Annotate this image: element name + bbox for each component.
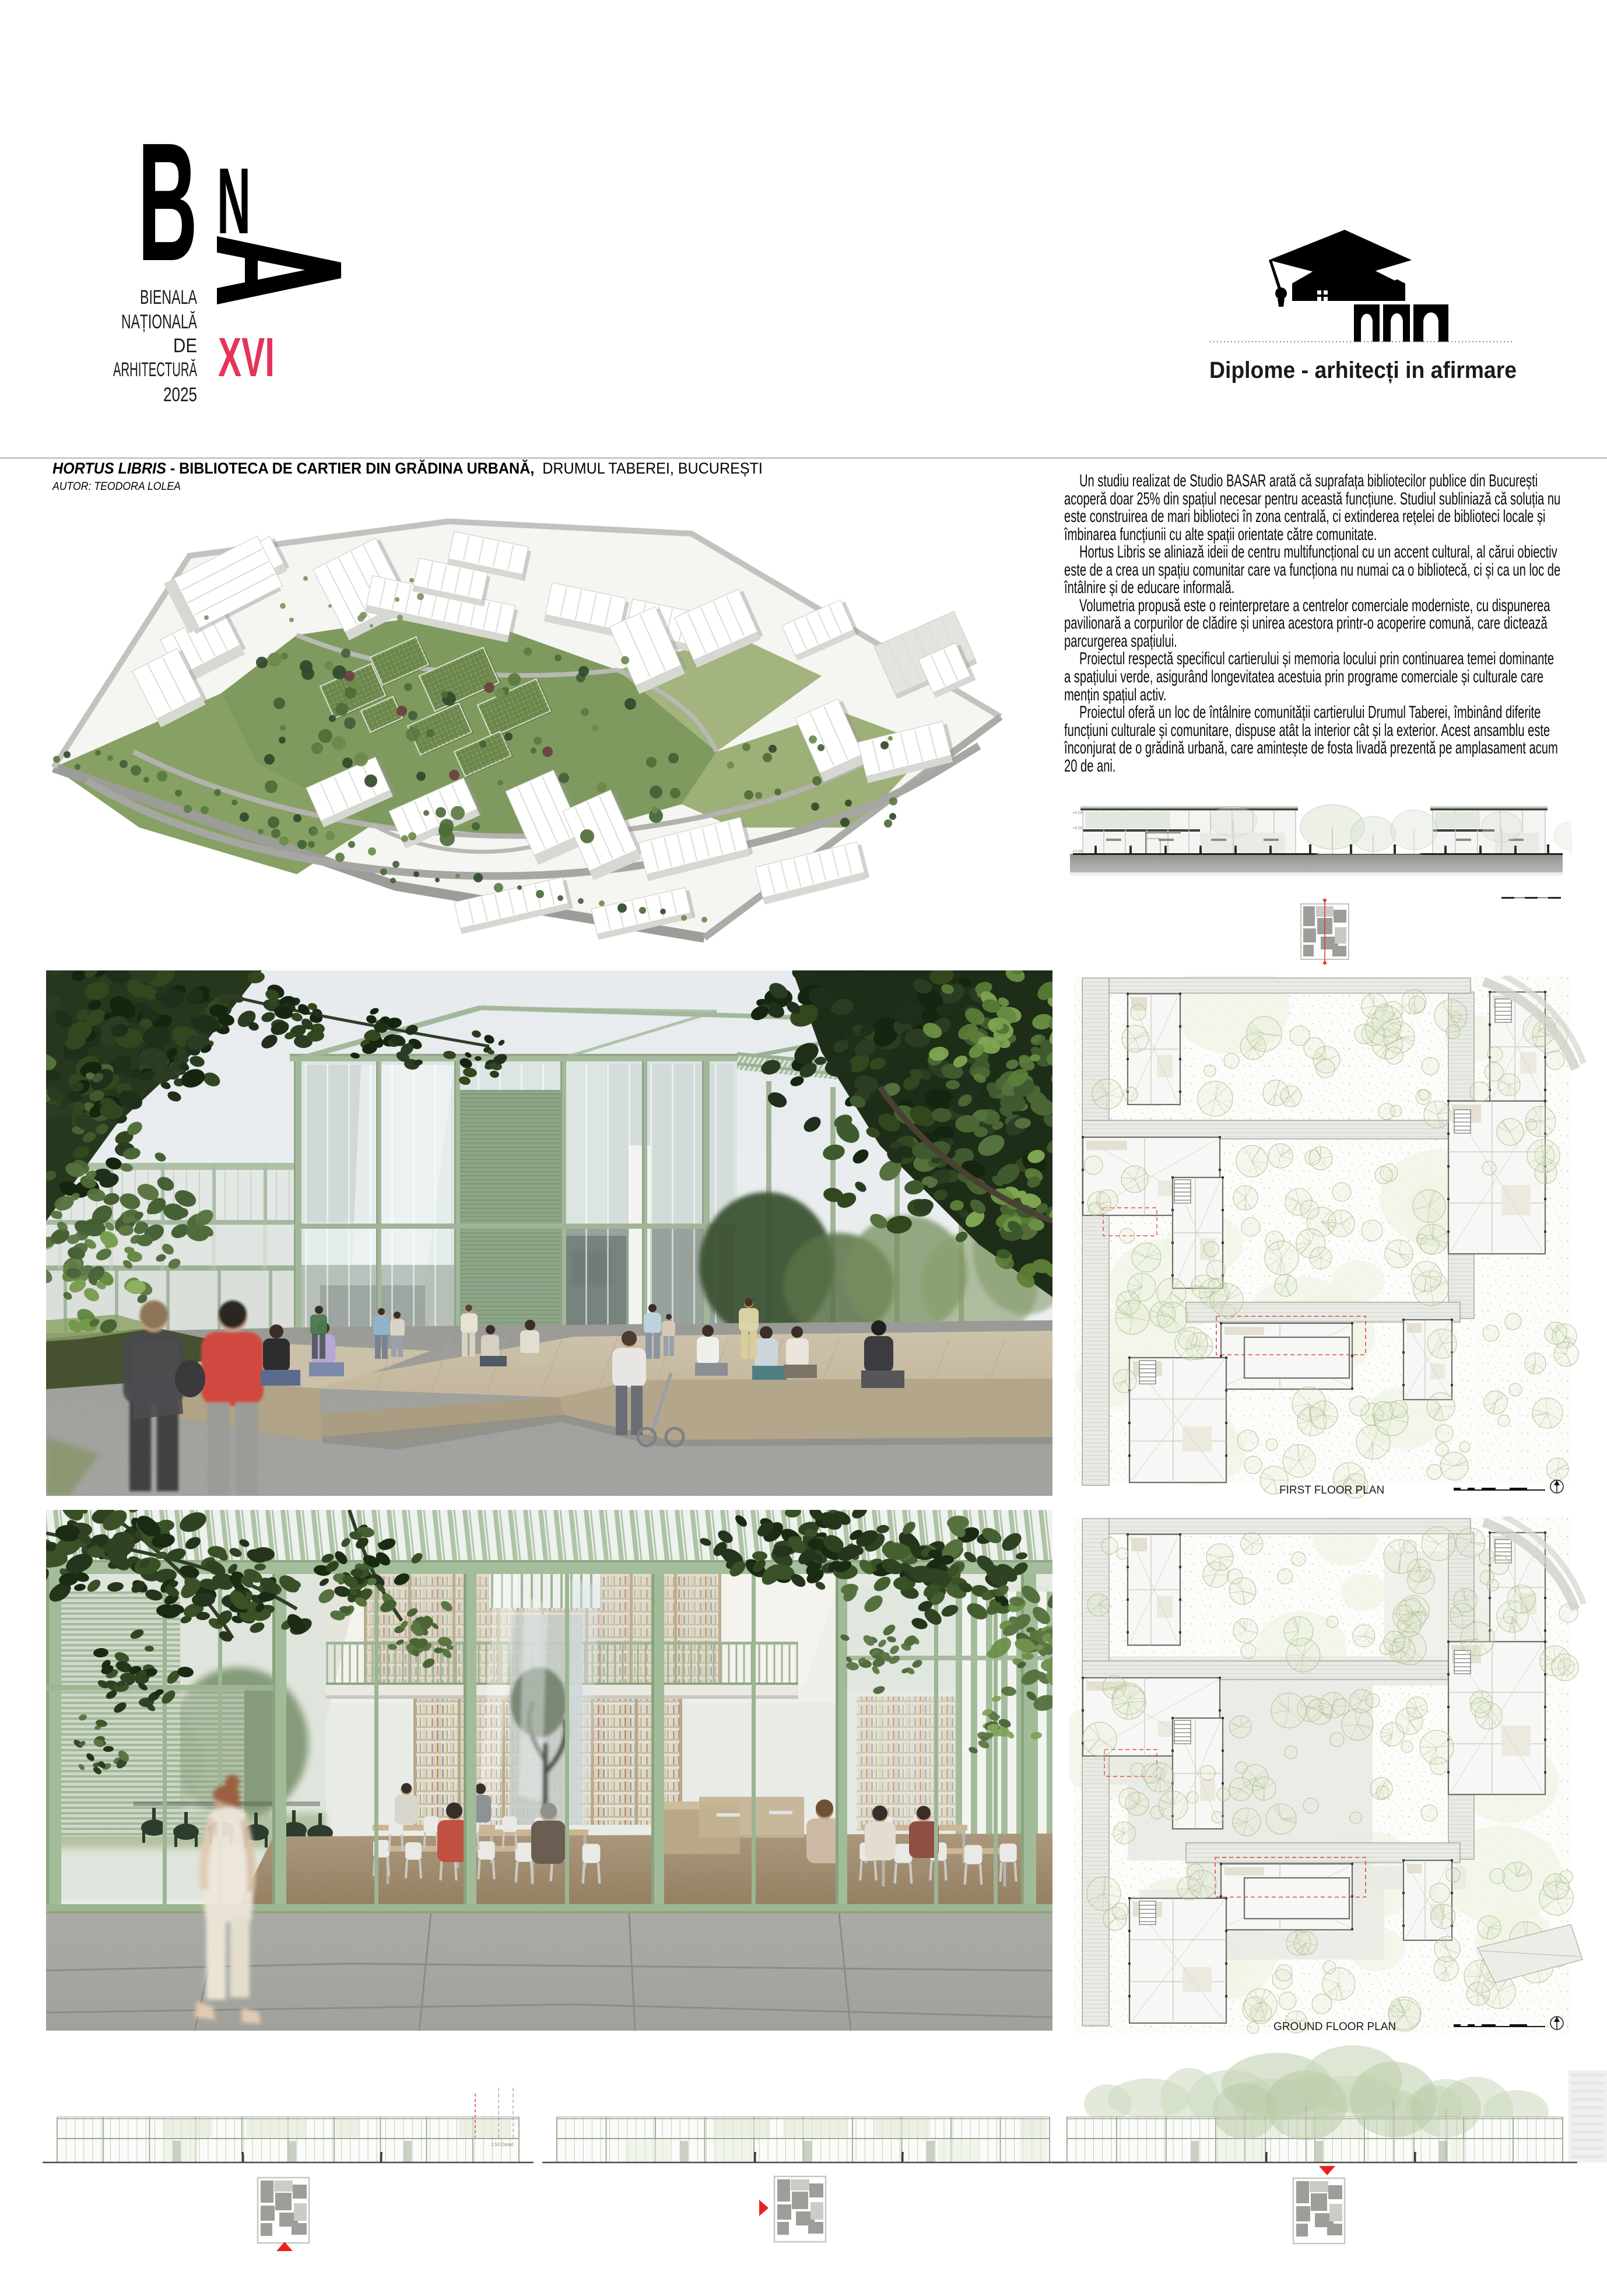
- svg-text:NAȚIONALĂ: NAȚIONALĂ: [121, 311, 197, 333]
- svg-text:DE: DE: [173, 335, 197, 357]
- svg-text:GROUND FLOOR PLAN: GROUND FLOOR PLAN: [1273, 2021, 1396, 2033]
- svg-text:+0.00: +0.00: [1072, 850, 1083, 854]
- svg-text:1:50 Detail: 1:50 Detail: [491, 2142, 513, 2147]
- svg-text:BIENALA: BIENALA: [140, 286, 197, 309]
- svg-text:+4.00: +4.00: [1072, 826, 1083, 830]
- svg-text:+6.00: +6.00: [1072, 811, 1083, 815]
- svg-text:XVI: XVI: [218, 327, 275, 388]
- svg-text:FIRST FLOOR PLAN: FIRST FLOOR PLAN: [1279, 1484, 1384, 1496]
- svg-text:ARHITECTURĂ: ARHITECTURĂ: [113, 359, 197, 381]
- svg-text:B: B: [138, 128, 198, 296]
- svg-text:Diplome - arhitecți in afirmar: Diplome - arhitecți in afirmare: [1209, 357, 1517, 383]
- svg-text:2025: 2025: [163, 384, 197, 406]
